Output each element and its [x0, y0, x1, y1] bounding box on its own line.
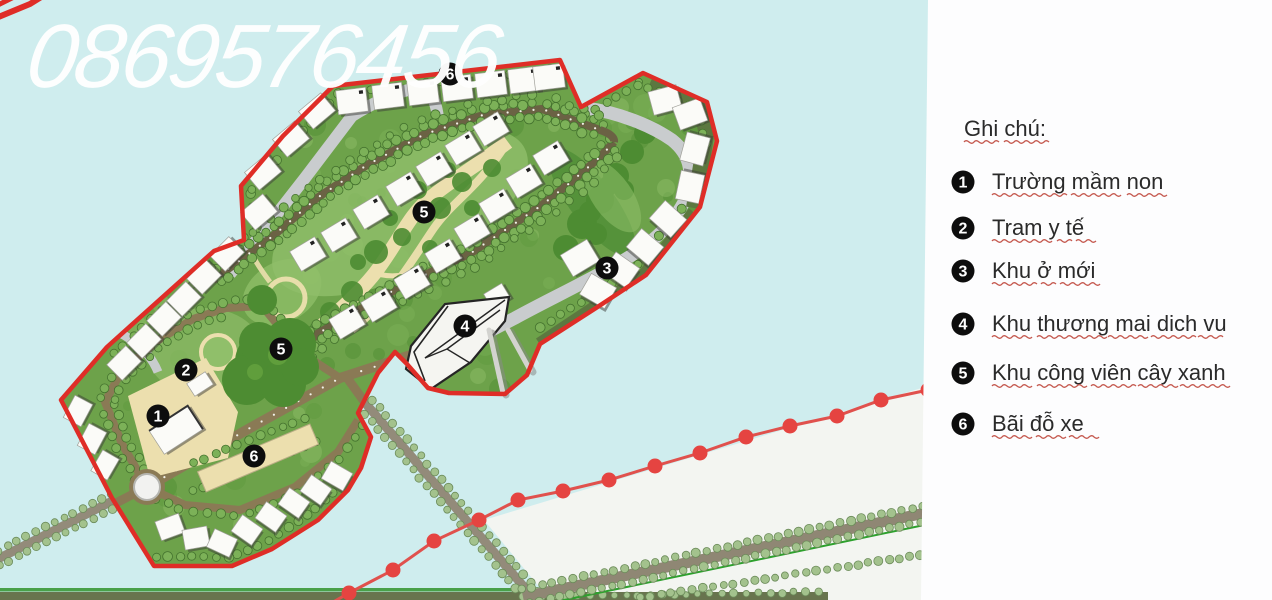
svg-text:3: 3: [603, 261, 612, 278]
svg-text:6: 6: [959, 417, 968, 434]
svg-text:1: 1: [154, 409, 163, 426]
svg-text:Trường mầm non: Trường mầm non: [992, 169, 1163, 194]
svg-text:2: 2: [182, 363, 191, 380]
svg-text:Khu thương mai dich vu: Khu thương mai dich vu: [992, 311, 1227, 336]
svg-text:2: 2: [959, 221, 968, 238]
svg-text:Tram y tế: Tram y tế: [992, 215, 1084, 240]
svg-text:3: 3: [959, 264, 968, 281]
svg-text:Khu công viên cây xanh: Khu công viên cây xanh: [992, 360, 1226, 385]
svg-text:Ghi chú:: Ghi chú:: [964, 116, 1046, 141]
svg-text:1: 1: [959, 175, 968, 192]
svg-text:5: 5: [277, 342, 286, 359]
svg-text:4: 4: [461, 319, 470, 336]
svg-text:6: 6: [250, 449, 259, 466]
svg-text:5: 5: [959, 366, 968, 383]
svg-text:0869576456: 0869576456: [21, 6, 509, 107]
svg-text:Bãi đỗ xe: Bãi đỗ xe: [992, 411, 1084, 436]
svg-text:4: 4: [959, 317, 968, 334]
svg-text:Khu ở mới: Khu ở mới: [992, 258, 1095, 283]
svg-text:5: 5: [420, 205, 429, 222]
